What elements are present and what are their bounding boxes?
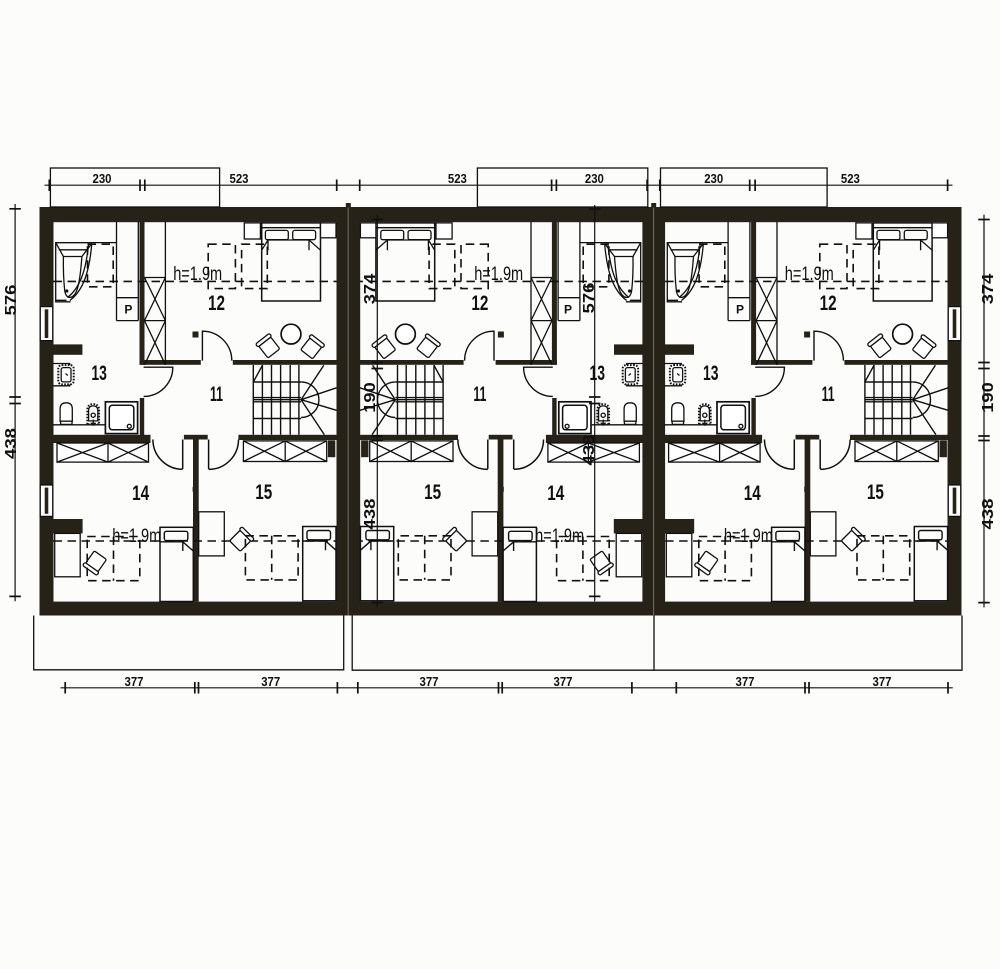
svg-text:438: 438 [980,498,997,530]
svg-text:15: 15 [867,481,884,504]
svg-text:377: 377 [554,674,573,689]
svg-text:190: 190 [980,382,997,413]
svg-text:14: 14 [132,482,149,505]
svg-text:h=1.9m: h=1.9m [535,526,584,547]
svg-text:h=1.9m: h=1.9m [785,264,834,285]
svg-text:377: 377 [873,674,892,689]
svg-text:h=1.9m: h=1.9m [724,526,773,547]
svg-text:377: 377 [420,674,439,689]
svg-text:h=1.9m: h=1.9m [112,526,161,547]
svg-text:438: 438 [581,434,598,466]
svg-text:13: 13 [703,362,719,385]
svg-text:377: 377 [736,674,755,689]
svg-text:14: 14 [547,482,564,505]
svg-text:230: 230 [93,171,112,186]
svg-text:374: 374 [980,273,997,304]
svg-text:523: 523 [448,171,467,186]
svg-text:377: 377 [261,674,280,689]
svg-text:14: 14 [744,482,761,505]
svg-text:230: 230 [585,171,604,186]
svg-text:P: P [124,303,132,317]
svg-text:230: 230 [704,171,723,186]
svg-text:11: 11 [473,383,486,406]
svg-text:190: 190 [362,382,379,413]
svg-text:13: 13 [590,362,606,385]
svg-text:374: 374 [362,273,379,304]
svg-text:576: 576 [3,285,20,316]
svg-text:11: 11 [822,383,835,406]
svg-text:438: 438 [3,427,20,459]
svg-text:12: 12 [471,292,488,315]
svg-text:P: P [564,303,572,317]
svg-text:12: 12 [820,292,837,315]
svg-text:11: 11 [210,383,223,406]
svg-text:15: 15 [424,481,441,504]
svg-text:15: 15 [255,481,272,504]
svg-text:523: 523 [230,171,249,186]
svg-text:438: 438 [362,498,379,530]
svg-text:523: 523 [841,171,860,186]
svg-text:12: 12 [208,292,225,315]
svg-text:576: 576 [581,283,598,314]
svg-text:377: 377 [125,674,144,689]
svg-text:h=1.9m: h=1.9m [474,264,523,285]
svg-text:P: P [736,303,744,317]
svg-text:h=1.9m: h=1.9m [173,264,222,285]
svg-text:13: 13 [91,362,107,385]
